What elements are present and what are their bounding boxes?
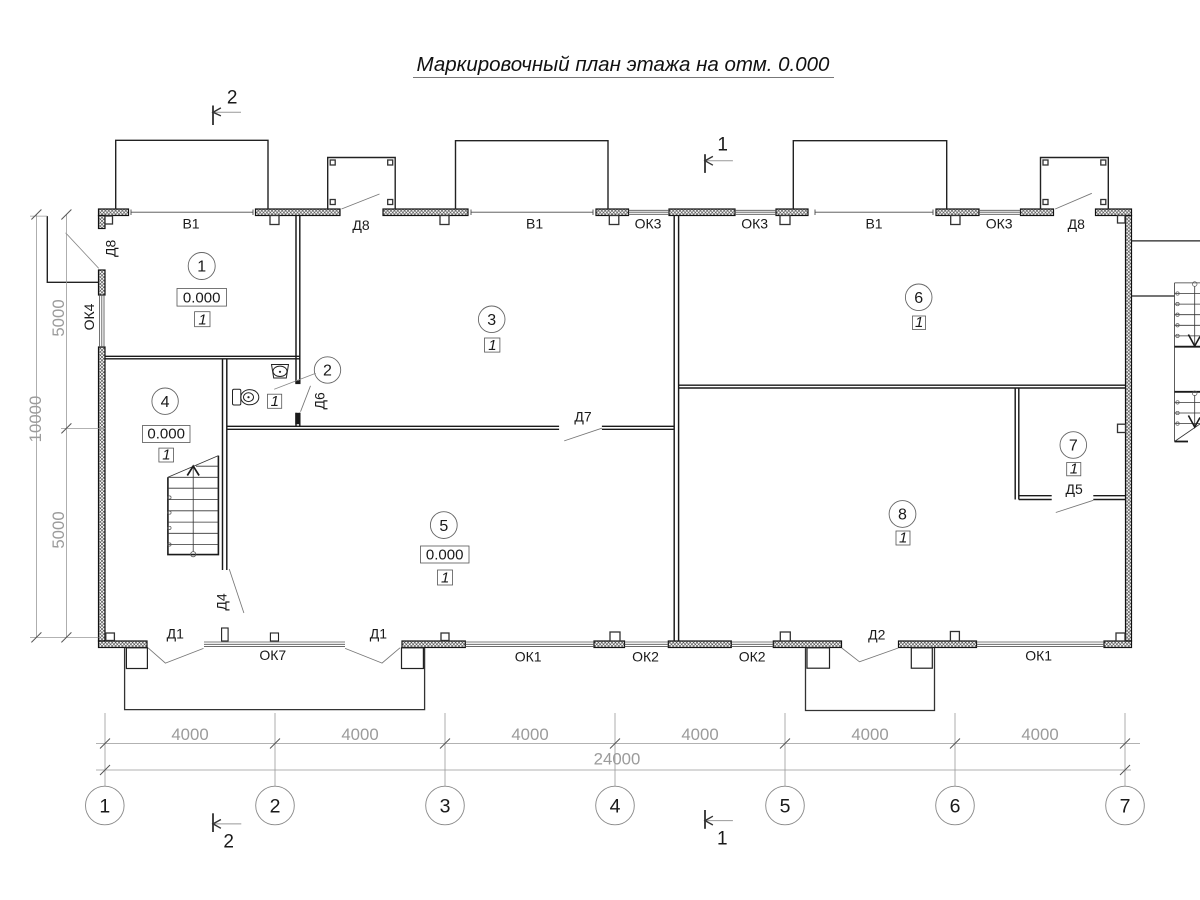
svg-text:4000: 4000 bbox=[341, 725, 378, 744]
svg-text:1: 1 bbox=[271, 393, 279, 410]
svg-text:1: 1 bbox=[899, 530, 907, 547]
svg-text:ОК2: ОК2 bbox=[632, 648, 659, 664]
svg-text:1: 1 bbox=[441, 570, 449, 587]
svg-text:4000: 4000 bbox=[171, 725, 208, 744]
svg-text:Маркировочный план этажа на от: Маркировочный план этажа на отм. 0.000 bbox=[417, 53, 831, 76]
svg-text:3: 3 bbox=[487, 312, 496, 329]
svg-text:1: 1 bbox=[717, 135, 728, 156]
svg-text:Д8: Д8 bbox=[103, 239, 119, 256]
svg-text:ОК4: ОК4 bbox=[81, 303, 97, 330]
svg-text:6: 6 bbox=[914, 290, 923, 307]
svg-text:Д4: Д4 bbox=[213, 593, 229, 610]
svg-text:Д2: Д2 bbox=[868, 627, 885, 643]
svg-text:3: 3 bbox=[440, 796, 451, 818]
svg-text:1: 1 bbox=[162, 447, 170, 464]
svg-text:В1: В1 bbox=[526, 215, 543, 231]
svg-text:Д6: Д6 bbox=[312, 392, 328, 409]
svg-text:ОК7: ОК7 bbox=[259, 647, 286, 663]
svg-text:1: 1 bbox=[198, 311, 206, 328]
svg-text:Д7: Д7 bbox=[574, 409, 591, 425]
svg-text:Д8: Д8 bbox=[352, 217, 369, 233]
svg-text:0.000: 0.000 bbox=[426, 546, 464, 563]
svg-text:ОК1: ОК1 bbox=[515, 648, 542, 664]
svg-text:0.000: 0.000 bbox=[147, 426, 185, 443]
svg-text:1: 1 bbox=[488, 337, 496, 354]
svg-text:1: 1 bbox=[99, 796, 110, 818]
svg-text:4000: 4000 bbox=[1021, 725, 1058, 744]
svg-text:ОК3: ОК3 bbox=[986, 215, 1013, 231]
svg-text:5: 5 bbox=[439, 518, 448, 535]
svg-text:Д5: Д5 bbox=[1066, 481, 1083, 497]
svg-text:2: 2 bbox=[223, 832, 234, 853]
svg-text:1: 1 bbox=[197, 259, 206, 276]
svg-text:4: 4 bbox=[161, 394, 170, 411]
svg-text:5: 5 bbox=[780, 796, 791, 818]
svg-text:4000: 4000 bbox=[681, 725, 718, 744]
svg-text:4: 4 bbox=[610, 796, 621, 818]
svg-text:Д1: Д1 bbox=[370, 626, 387, 642]
svg-text:1: 1 bbox=[1070, 461, 1078, 478]
svg-text:5000: 5000 bbox=[49, 299, 68, 336]
svg-text:2: 2 bbox=[270, 796, 281, 818]
svg-text:8: 8 bbox=[898, 507, 907, 524]
svg-text:1: 1 bbox=[915, 314, 923, 331]
svg-text:В1: В1 bbox=[182, 215, 199, 231]
svg-text:ОК2: ОК2 bbox=[739, 648, 766, 664]
svg-text:2: 2 bbox=[227, 88, 238, 109]
svg-text:ОК3: ОК3 bbox=[635, 215, 662, 231]
svg-text:1: 1 bbox=[717, 828, 728, 849]
svg-text:5000: 5000 bbox=[49, 511, 68, 548]
svg-text:Д8: Д8 bbox=[1068, 216, 1085, 232]
svg-text:2: 2 bbox=[323, 363, 332, 380]
svg-text:ОК3: ОК3 bbox=[741, 215, 768, 231]
svg-text:4000: 4000 bbox=[511, 725, 548, 744]
svg-text:6: 6 bbox=[950, 796, 961, 818]
svg-text:В1: В1 bbox=[865, 215, 882, 231]
svg-text:4000: 4000 bbox=[851, 725, 888, 744]
svg-text:0.000: 0.000 bbox=[183, 289, 221, 306]
svg-text:7: 7 bbox=[1069, 438, 1078, 455]
svg-text:24000: 24000 bbox=[594, 750, 641, 769]
svg-text:10000: 10000 bbox=[26, 396, 45, 443]
svg-text:ОК1: ОК1 bbox=[1025, 648, 1052, 664]
svg-text:Д1: Д1 bbox=[167, 626, 184, 642]
svg-text:7: 7 bbox=[1120, 796, 1131, 818]
